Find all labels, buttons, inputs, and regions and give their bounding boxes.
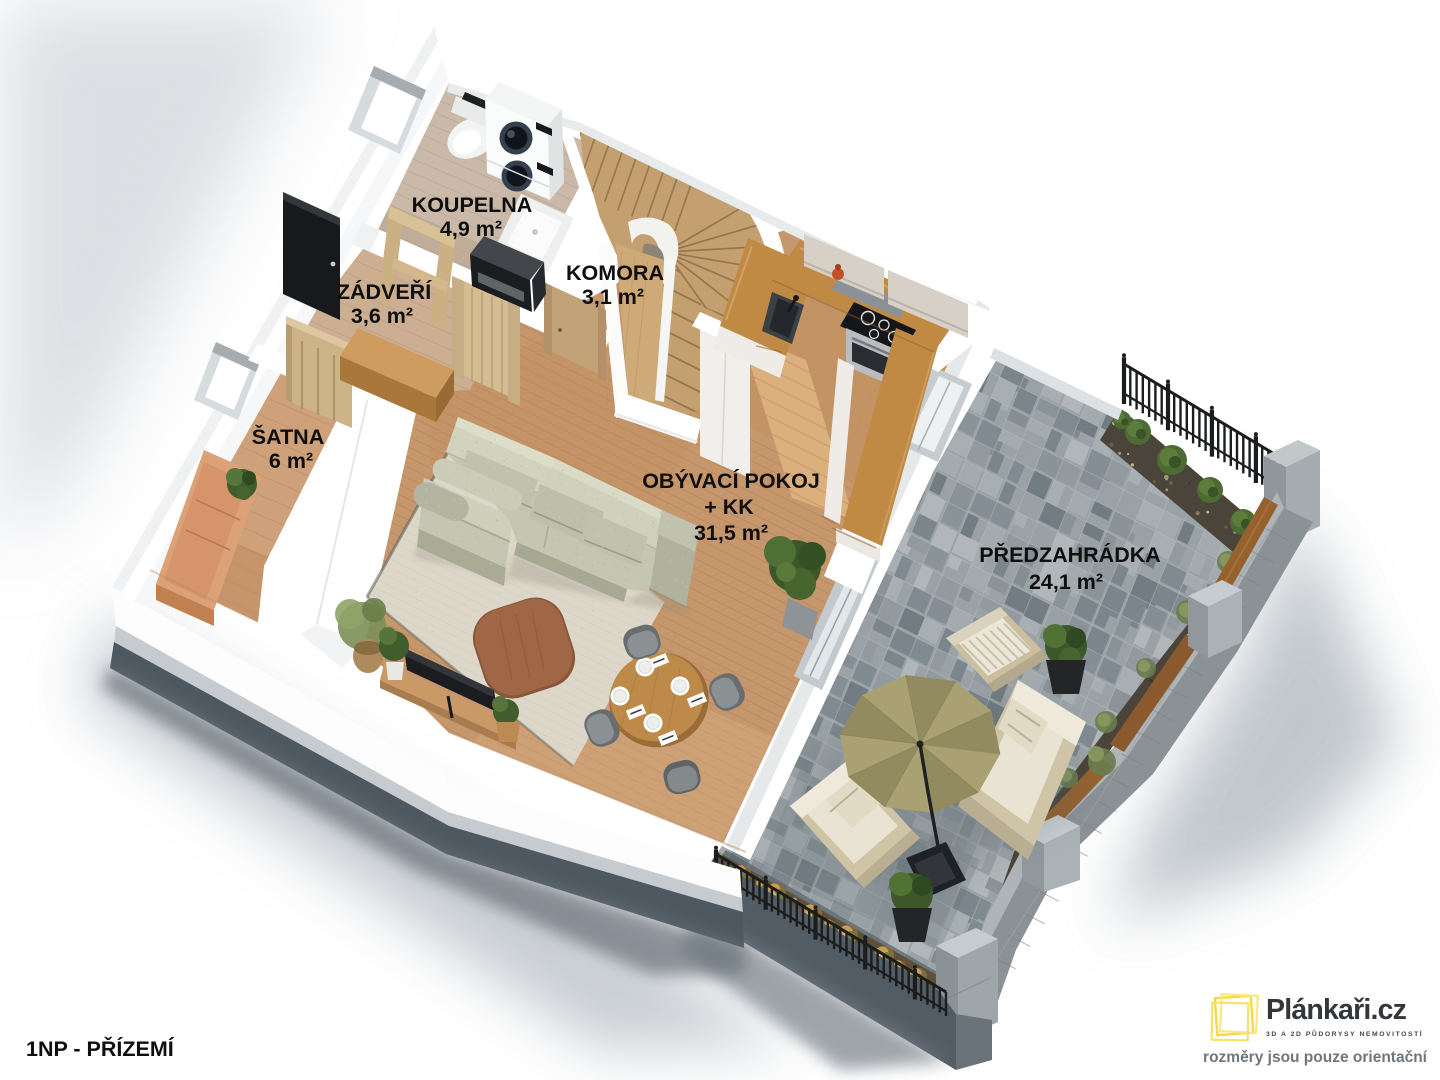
svg-text:rozměry jsou pouze orientační: rozměry jsou pouze orientační (1203, 1049, 1428, 1066)
svg-text:3,6 m²: 3,6 m² (351, 304, 413, 328)
svg-text:Plánkaři.cz: Plánkaři.cz (1266, 994, 1407, 1026)
svg-text:+ KK: + KK (704, 495, 754, 519)
svg-text:3,1 m²: 3,1 m² (582, 285, 644, 309)
svg-text:KOUPELNA: KOUPELNA (412, 193, 533, 217)
svg-text:1NP - PŘÍZEMÍ: 1NP - PŘÍZEMÍ (26, 1036, 175, 1061)
svg-text:ZÁDVEŘÍ: ZÁDVEŘÍ (337, 279, 432, 304)
svg-text:6 m²: 6 m² (269, 449, 313, 473)
svg-text:PŘEDZAHRÁDKA: PŘEDZAHRÁDKA (979, 542, 1161, 567)
svg-text:ŠATNA: ŠATNA (252, 424, 324, 449)
svg-text:OBÝVACÍ POKOJ: OBÝVACÍ POKOJ (642, 468, 820, 493)
svg-text:31,5 m²: 31,5 m² (694, 521, 768, 545)
svg-text:24,1 m²: 24,1 m² (1029, 570, 1103, 594)
svg-text:4,9 m²: 4,9 m² (440, 217, 502, 241)
svg-text:KOMORA: KOMORA (566, 261, 664, 285)
